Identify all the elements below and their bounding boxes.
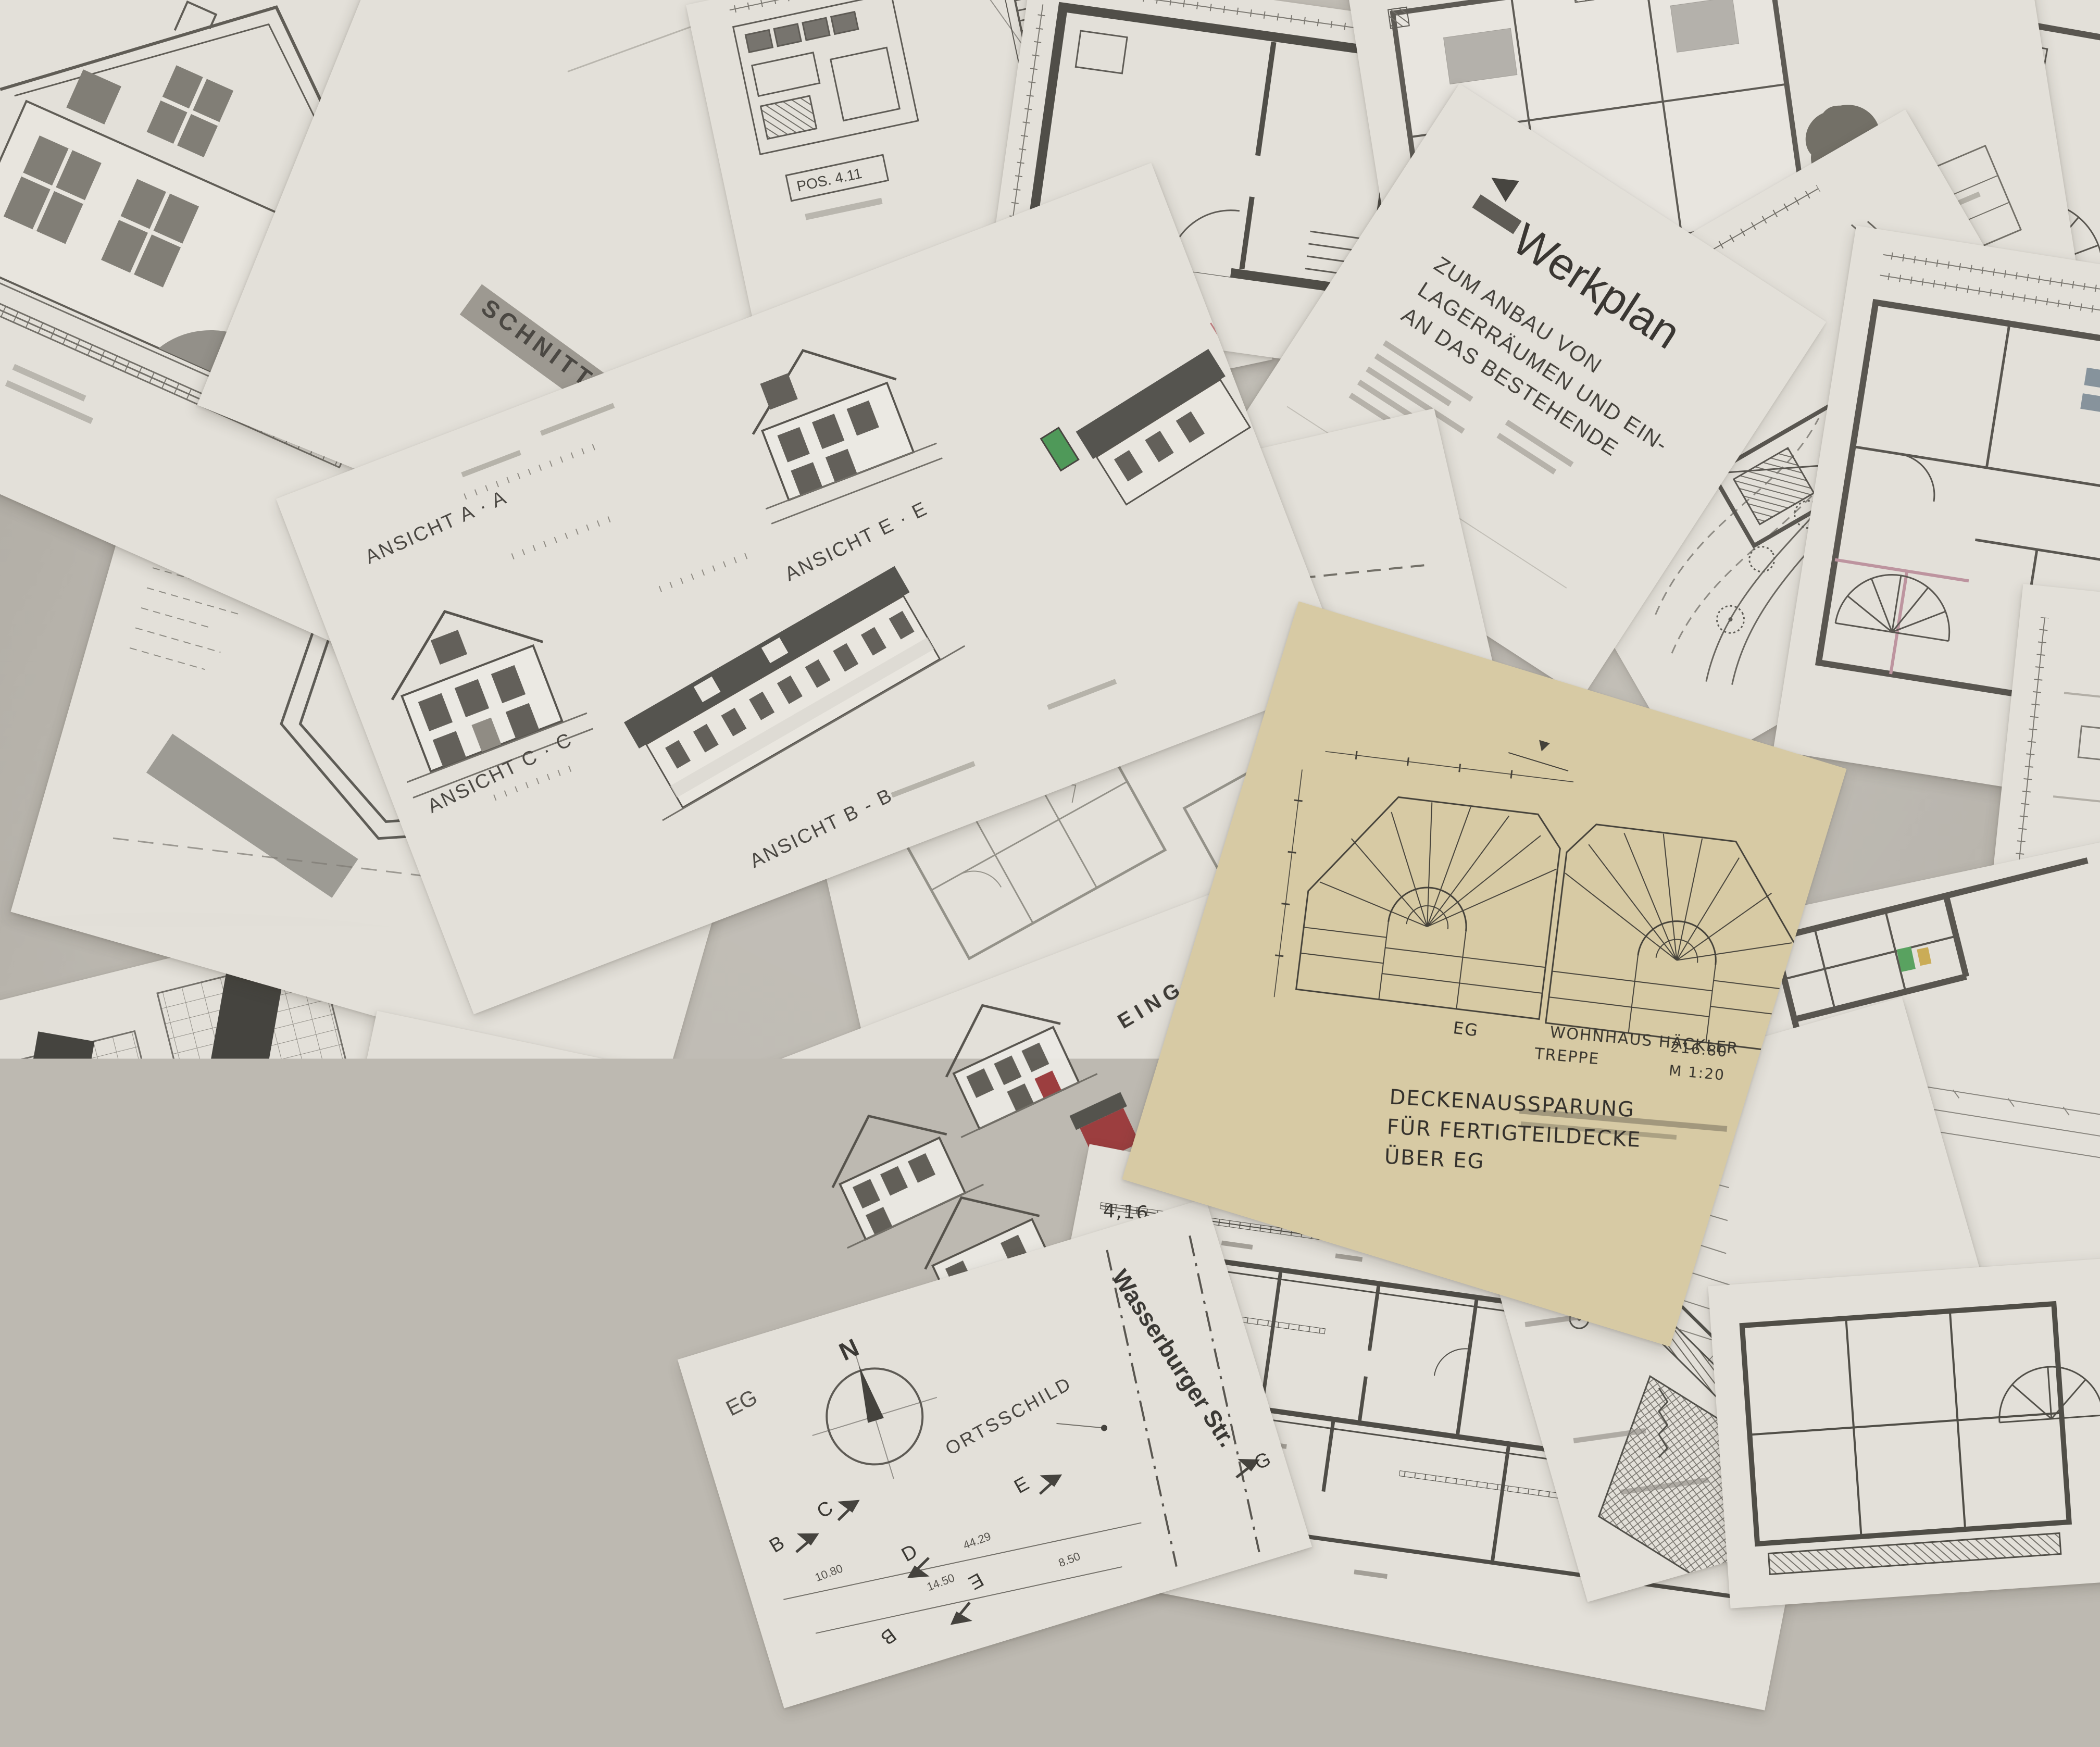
sheet-bottomright-plan	[1708, 1256, 2100, 1608]
treppe-note-line3: ÜBER EG	[1384, 1146, 1485, 1172]
treppe-floor-eg: EG	[1452, 1019, 1480, 1039]
bottomright-plan-drawing	[1708, 1256, 2100, 1608]
blueprint-collage-photo: B	[0, 0, 2100, 1575]
section-marker-a: A	[441, 1088, 455, 1109]
